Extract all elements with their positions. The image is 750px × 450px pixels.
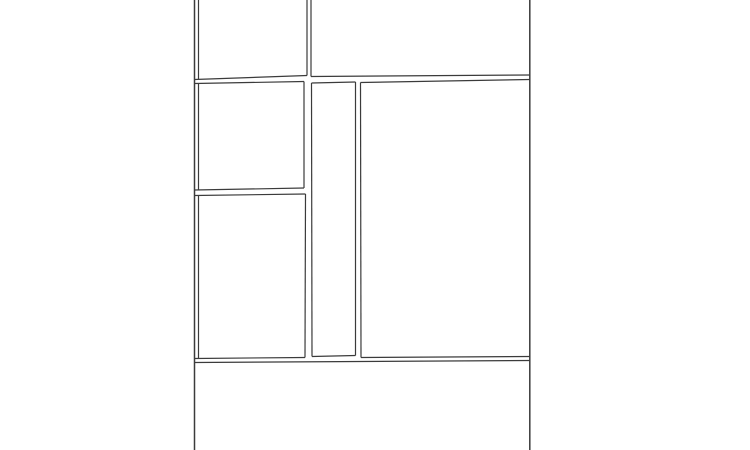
page-canvas [0,0,750,450]
panel-layout-drawing [0,0,750,450]
panel-f-top [361,80,530,83]
bottom-section-top [195,361,530,363]
panel-e-top [312,82,356,83]
panel-d-top [195,194,306,196]
panel-f-bottom [361,357,530,358]
panel-b-bottom [311,75,530,77]
panel-d-bottom [195,358,306,359]
panel-e-bottom [312,356,356,357]
panel-d-right [305,194,306,358]
panel-c-bottom [195,188,305,190]
panel-f-left [361,83,362,358]
panel-e-left [312,83,313,357]
panel-c-top [195,82,305,84]
panel-a-bottom [195,76,308,80]
